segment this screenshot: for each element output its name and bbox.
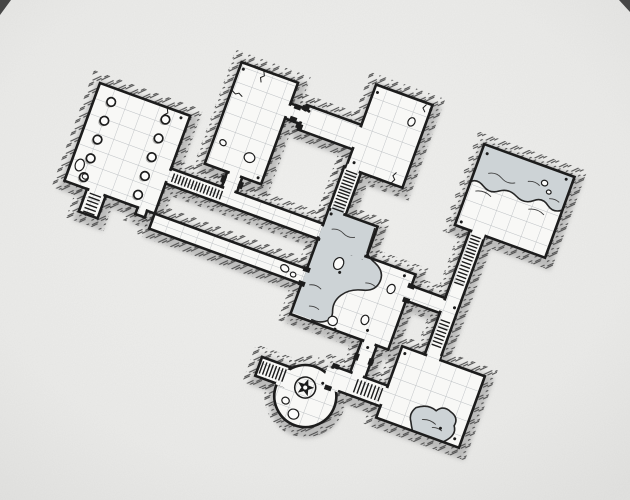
dungeon-map-page bbox=[0, 0, 630, 500]
dungeon-map-canvas bbox=[0, 0, 630, 500]
